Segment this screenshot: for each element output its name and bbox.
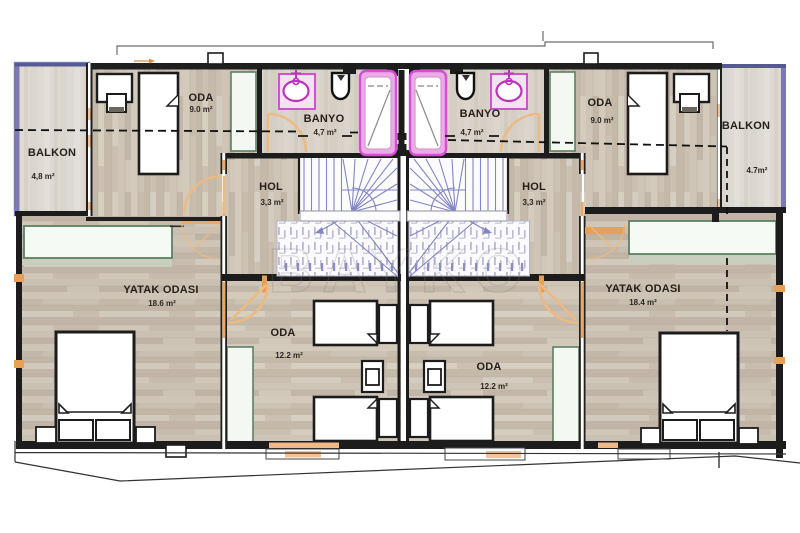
svg-text:4,8 m²: 4,8 m² <box>31 172 54 181</box>
svg-text:3,3 m²: 3,3 m² <box>260 198 283 207</box>
svg-text:BAYKO: BAYKO <box>268 237 531 306</box>
svg-text:4.7m²: 4.7m² <box>747 166 768 175</box>
svg-text:HOL: HOL <box>259 181 283 193</box>
svg-text:BALKON: BALKON <box>722 120 770 132</box>
svg-text:18.4 m²: 18.4 m² <box>629 298 657 307</box>
svg-text:18.6 m²: 18.6 m² <box>148 299 176 308</box>
svg-text:9.0 m²: 9.0 m² <box>590 116 613 125</box>
svg-text:4,7 m²: 4,7 m² <box>313 128 336 137</box>
svg-text:HOL: HOL <box>522 181 546 193</box>
svg-text:4,7 m²: 4,7 m² <box>460 128 483 137</box>
svg-text:BALKON: BALKON <box>28 147 76 159</box>
svg-text:BANYO: BANYO <box>304 113 345 125</box>
svg-text:ODA: ODA <box>476 361 501 373</box>
svg-text:12.2 m²: 12.2 m² <box>480 382 508 391</box>
svg-text:YATAK ODASI: YATAK ODASI <box>123 284 198 296</box>
svg-text:3,3 m²: 3,3 m² <box>522 198 545 207</box>
svg-text:YATAK ODASI: YATAK ODASI <box>605 283 680 295</box>
svg-text:12.2 m²: 12.2 m² <box>275 351 303 360</box>
svg-text:ODA: ODA <box>270 327 295 339</box>
svg-text:9.0 m²: 9.0 m² <box>189 105 212 114</box>
svg-text:ODA: ODA <box>188 92 213 104</box>
svg-text:BANYO: BANYO <box>460 108 501 120</box>
svg-text:ODA: ODA <box>587 97 612 109</box>
